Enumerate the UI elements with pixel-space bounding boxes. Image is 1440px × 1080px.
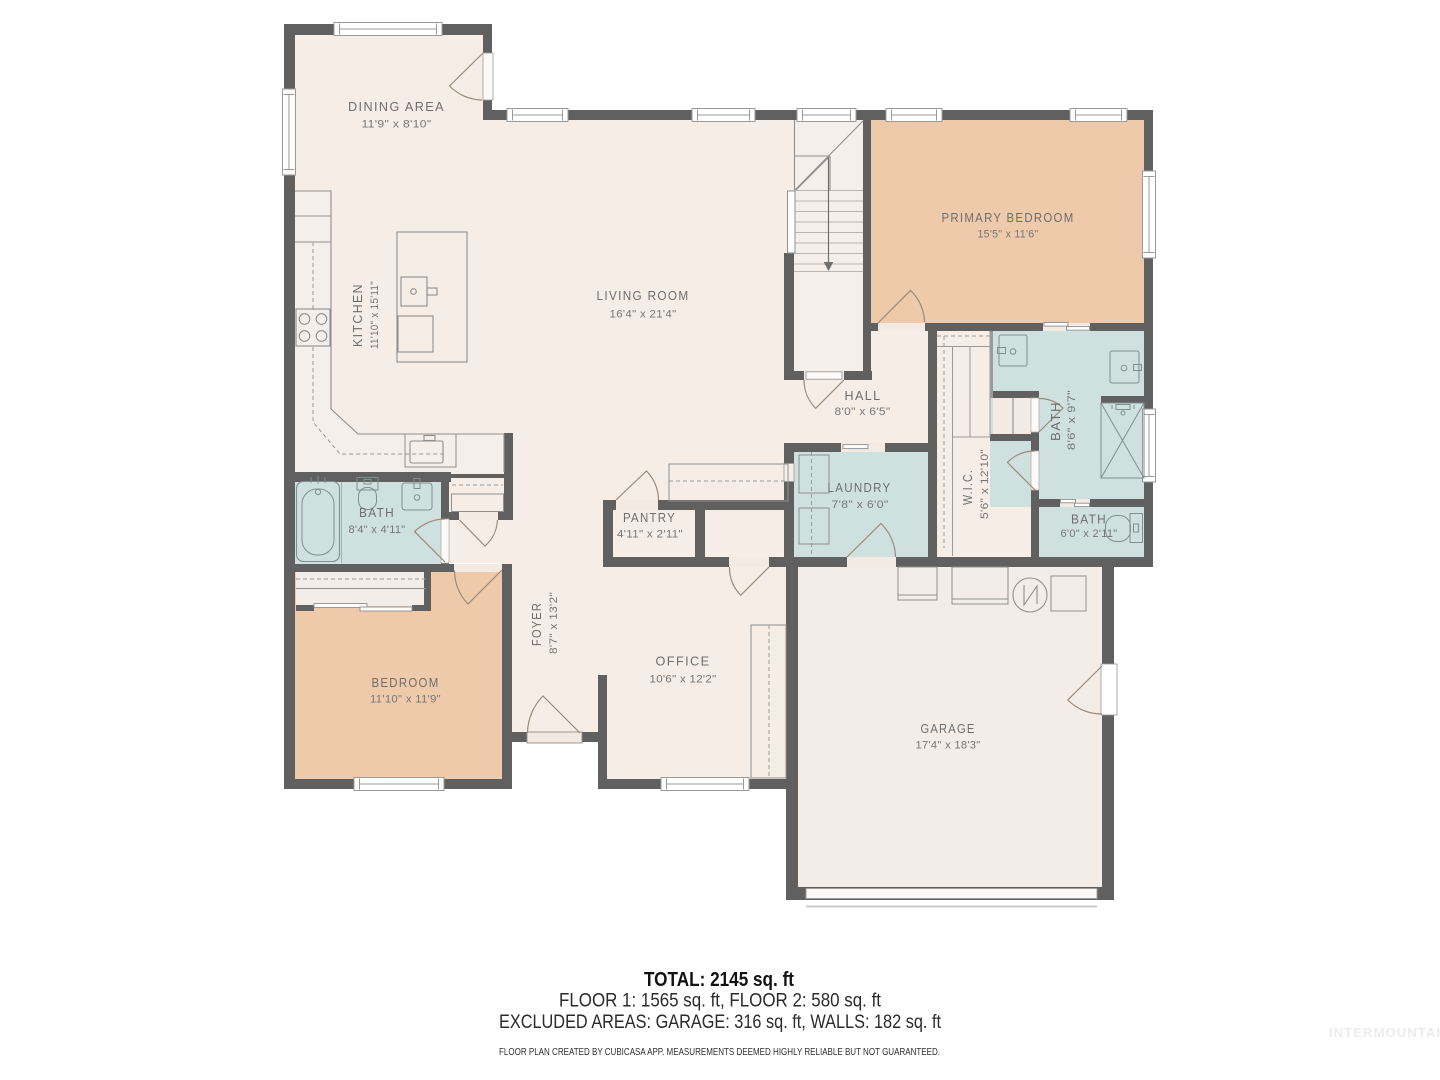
svg-text:5'6" x 12'10": 5'6" x 12'10" [979,449,991,519]
svg-text:W.I.C.: W.I.C. [961,469,975,505]
svg-text:OFFICE: OFFICE [656,655,711,669]
svg-text:17'4" x 18'3": 17'4" x 18'3" [916,740,981,752]
svg-text:LIVING ROOM: LIVING ROOM [597,289,690,303]
svg-text:FLOOR 1: 1565 sq. ft, FLOOR 2:: FLOOR 1: 1565 sq. ft, FLOOR 2: 580 sq. f… [559,990,881,1012]
svg-text:11'10" x 15'11": 11'10" x 15'11" [369,281,381,349]
svg-text:FLOOR PLAN CREATED BY CUBICASA: FLOOR PLAN CREATED BY CUBICASA APP. MEAS… [499,1047,940,1058]
svg-text:DINING AREA: DINING AREA [348,100,445,114]
svg-text:KITCHEN: KITCHEN [351,283,365,347]
svg-text:BEDROOM: BEDROOM [372,676,440,690]
svg-text:8'4" x 4'11": 8'4" x 4'11" [349,524,406,536]
svg-text:4'11" x 2'11": 4'11" x 2'11" [617,529,683,541]
svg-text:16'4" x 21'4": 16'4" x 21'4" [610,309,677,321]
svg-text:LAUNDRY: LAUNDRY [828,481,892,495]
svg-text:8'7" x 13'2": 8'7" x 13'2" [548,592,560,654]
svg-text:6'0" x 2'11": 6'0" x 2'11" [1061,528,1118,540]
svg-text:BATH: BATH [1071,513,1107,527]
svg-text:7'8" x 6'0": 7'8" x 6'0" [832,499,889,511]
svg-text:GARAGE: GARAGE [921,722,976,736]
svg-text:HALL: HALL [845,389,882,403]
svg-text:8'6" x 9'7": 8'6" x 9'7" [1066,390,1078,450]
svg-text:11'9" x 8'10": 11'9" x 8'10" [362,119,432,131]
svg-text:TOTAL: 2145 sq. ft: TOTAL: 2145 sq. ft [644,968,794,991]
svg-text:10'6" x 12'2": 10'6" x 12'2" [650,674,717,686]
svg-text:8'0" x 6'5": 8'0" x 6'5" [835,406,891,418]
svg-text:EXCLUDED AREAS: GARAGE: 316 sq: EXCLUDED AREAS: GARAGE: 316 sq. ft, WALL… [499,1011,941,1033]
svg-text:11'10" x 11'9": 11'10" x 11'9" [370,694,441,706]
svg-text:BATH: BATH [359,506,395,520]
svg-text:15'5" x 11'6": 15'5" x 11'6" [978,229,1039,241]
svg-text:PANTRY: PANTRY [623,511,676,525]
svg-text:FOYER: FOYER [530,602,544,646]
svg-text:BATH: BATH [1049,401,1063,441]
svg-text:PRIMARY BEDROOM: PRIMARY BEDROOM [942,211,1075,225]
svg-text:INTERMOUNTAIN: INTERMOUNTAIN [1329,1025,1440,1040]
